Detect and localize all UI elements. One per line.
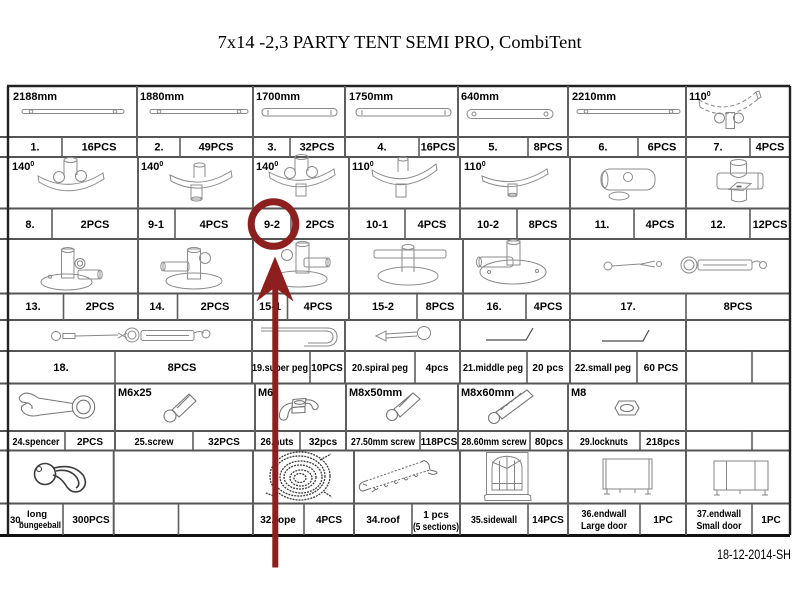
svg-text:80pcs: 80pcs [535, 437, 564, 448]
svg-text:2PCS: 2PCS [77, 437, 103, 448]
svg-text:22.small peg: 22.small peg [575, 363, 631, 374]
svg-text:34.roof: 34.roof [366, 515, 400, 526]
svg-text:11.: 11. [595, 219, 610, 231]
svg-text:19.super peg: 19.super peg [252, 363, 308, 374]
svg-text:9-1: 9-1 [148, 219, 164, 231]
svg-text:(5 sections): (5 sections) [413, 522, 459, 533]
svg-text:8PCS: 8PCS [426, 301, 455, 313]
svg-text:2188mm: 2188mm [13, 91, 57, 103]
svg-text:20.spiral peg: 20.spiral peg [352, 363, 408, 374]
svg-text:32pcs: 32pcs [309, 437, 338, 448]
svg-text:4.: 4. [377, 142, 386, 154]
svg-text:28.60mm screw: 28.60mm screw [462, 437, 527, 448]
svg-text:21.middle peg: 21.middle peg [463, 363, 523, 374]
svg-text:300PCS: 300PCS [72, 515, 110, 526]
svg-text:4PCS: 4PCS [756, 142, 785, 154]
svg-text:12.: 12. [710, 219, 725, 231]
svg-text:1750mm: 1750mm [349, 91, 393, 103]
svg-text:49PCS: 49PCS [199, 142, 234, 154]
svg-text:4PCS: 4PCS [316, 515, 342, 526]
svg-text:M6: M6 [258, 387, 273, 399]
svg-text:16PCS: 16PCS [421, 142, 456, 154]
svg-text:2.: 2. [154, 142, 163, 154]
svg-text:1880mm: 1880mm [140, 91, 184, 103]
svg-text:10PCS: 10PCS [311, 363, 343, 374]
svg-text:6PCS: 6PCS [648, 142, 677, 154]
svg-text:6.: 6. [598, 142, 607, 154]
svg-text:8.: 8. [25, 219, 34, 231]
svg-text:18.: 18. [53, 362, 68, 374]
svg-text:60 PCS: 60 PCS [644, 363, 679, 374]
svg-text:10-2: 10-2 [477, 219, 499, 231]
svg-text:25.screw: 25.screw [135, 437, 174, 448]
svg-text:1.: 1. [30, 142, 39, 154]
svg-text:35.sidewall: 35.sidewall [471, 515, 517, 526]
svg-text:37.endwall: 37.endwall [697, 509, 741, 520]
svg-text:4PCS: 4PCS [200, 219, 229, 231]
svg-text:20 pcs: 20 pcs [532, 363, 564, 374]
svg-text:118PCS: 118PCS [421, 437, 458, 448]
svg-text:1 pcs: 1 pcs [423, 510, 449, 521]
svg-text:1700mm: 1700mm [256, 91, 300, 103]
svg-text:1PC: 1PC [761, 515, 780, 526]
svg-text:16.: 16. [486, 301, 501, 313]
svg-text:4PCS: 4PCS [534, 301, 563, 313]
svg-text:29.locknuts: 29.locknuts [580, 437, 628, 448]
svg-text:27.50mm screw: 27.50mm screw [351, 437, 415, 448]
svg-text:2210mm: 2210mm [572, 91, 616, 103]
svg-text:2PCS: 2PCS [306, 219, 335, 231]
svg-text:9-2: 9-2 [264, 219, 280, 231]
svg-text:long: long [27, 509, 47, 520]
svg-text:M6x25: M6x25 [118, 387, 152, 399]
svg-text:M8x60mm: M8x60mm [461, 387, 514, 399]
svg-text:15-2: 15-2 [372, 301, 394, 313]
svg-text:32PCS: 32PCS [300, 142, 335, 154]
svg-text:4PCS: 4PCS [646, 219, 675, 231]
svg-text:14.: 14. [149, 301, 164, 313]
svg-text:18-12-2014-SH: 18-12-2014-SH [717, 547, 791, 562]
svg-text:640mm: 640mm [461, 91, 499, 103]
svg-text:8PCS: 8PCS [168, 362, 197, 374]
svg-text:1PC: 1PC [653, 515, 672, 526]
svg-text:3.: 3. [267, 142, 276, 154]
svg-text:7.: 7. [713, 142, 722, 154]
svg-text:12PCS: 12PCS [753, 219, 788, 231]
svg-text:13.: 13. [25, 301, 40, 313]
svg-text:2PCS: 2PCS [81, 219, 110, 231]
svg-text:4PCS: 4PCS [304, 301, 333, 313]
svg-text:16PCS: 16PCS [82, 142, 117, 154]
svg-text:M8: M8 [571, 387, 586, 399]
svg-text:17.: 17. [620, 301, 635, 313]
svg-text:24.spencer: 24.spencer [13, 437, 60, 448]
svg-text:218pcs: 218pcs [646, 437, 680, 448]
svg-text:8PCS: 8PCS [529, 219, 558, 231]
svg-text:4PCS: 4PCS [418, 219, 447, 231]
svg-text:M8x50mm: M8x50mm [349, 387, 402, 399]
svg-text:2PCS: 2PCS [86, 301, 115, 313]
svg-text:8PCS: 8PCS [724, 301, 753, 313]
svg-text:bungeeball: bungeeball [19, 520, 61, 531]
svg-text:2PCS: 2PCS [201, 301, 230, 313]
svg-text:32PCS: 32PCS [208, 437, 240, 448]
svg-text:Large door: Large door [581, 521, 627, 532]
svg-text:5.: 5. [488, 142, 497, 154]
svg-text:4pcs: 4pcs [426, 363, 449, 374]
svg-text:7x14 -2,3 PARTY TENT SEMI PRO,: 7x14 -2,3 PARTY TENT SEMI PRO, CombiTent [218, 32, 582, 52]
svg-text:14PCS: 14PCS [532, 515, 564, 526]
svg-text:36.endwall: 36.endwall [582, 509, 627, 520]
svg-text:10-1: 10-1 [366, 219, 388, 231]
svg-text:Small door: Small door [697, 521, 742, 532]
svg-text:8PCS: 8PCS [534, 142, 563, 154]
